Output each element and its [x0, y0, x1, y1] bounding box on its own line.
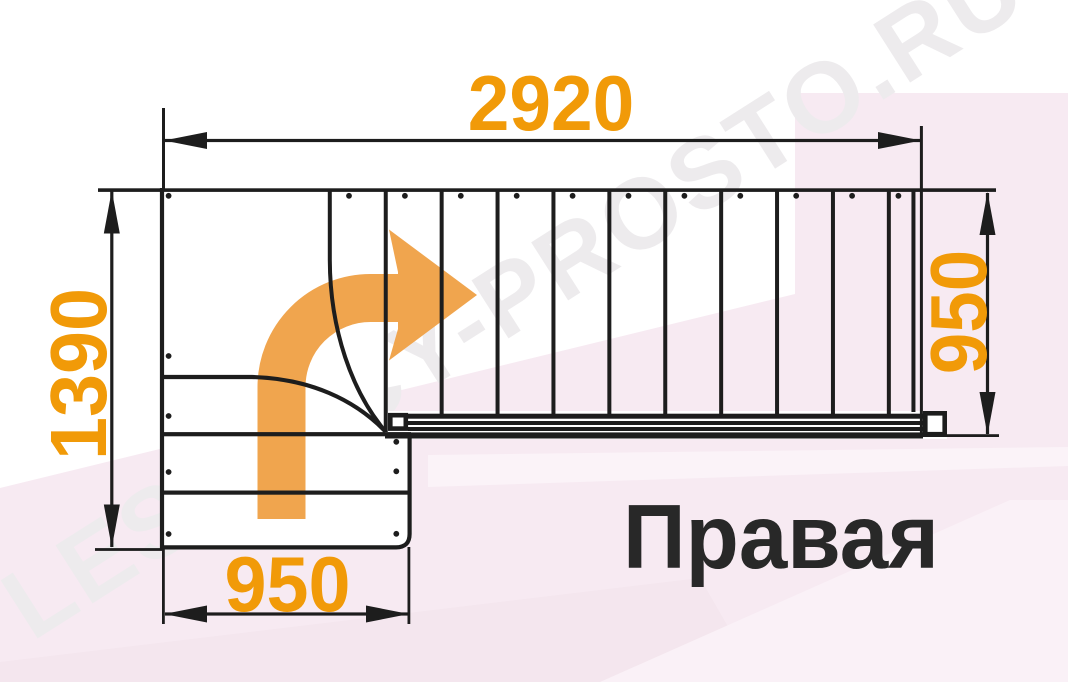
svg-text:2920: 2920 [468, 61, 635, 147]
svg-text:1390: 1390 [34, 288, 123, 460]
svg-text:950: 950 [914, 250, 1003, 375]
svg-text:Правая: Правая [623, 487, 939, 588]
svg-text:950: 950 [225, 542, 351, 628]
